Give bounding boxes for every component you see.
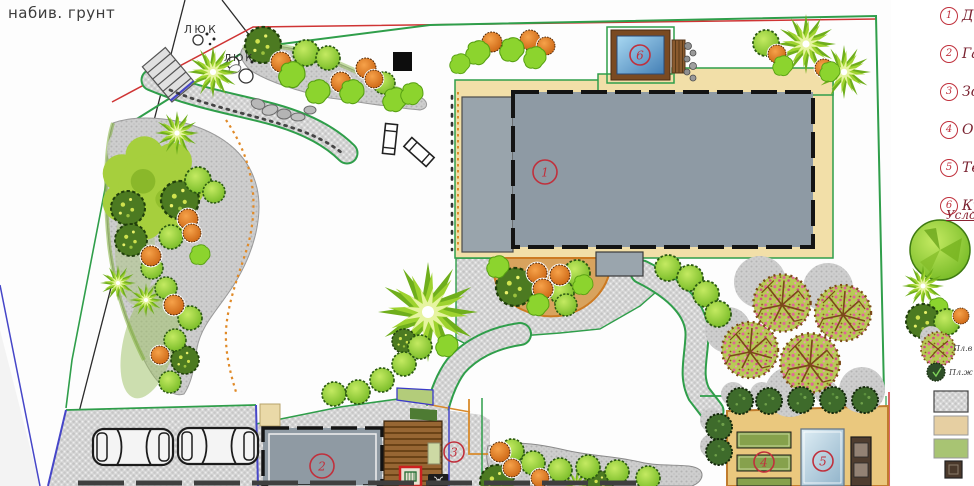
orange-shrub-icon [140,245,163,268]
legend-item-4: 4 Ог [940,121,974,139]
round-shrub-icon [756,388,782,414]
legend-heading: Усло [946,208,974,222]
shrub-icon [705,301,731,327]
legend-fruit-shrub-icon [927,363,945,381]
legend-label-2: Га [962,46,974,62]
legend-paving-swatch [934,391,968,412]
porch [596,252,643,276]
fruit-tree-label: Пл.в [953,344,972,353]
orange-shrub-icon [182,223,203,244]
svg-text:3: 3 [450,446,458,460]
shrub-icon [605,460,629,484]
orange-shrub-icon [150,345,171,366]
legend-lawn-swatch [934,439,968,458]
legend-item-5: 5 Те [940,159,974,177]
fruit-tree-icon [753,274,810,331]
car-icon [178,428,258,464]
landscape-plan: ЛЮК ЛЮК 1 2 3 4 5 6 [0,0,974,486]
legend-sand-swatch [934,416,968,435]
round-shrub-icon [788,387,814,413]
legend-label-4: Ог [962,122,974,138]
main-house [513,92,813,247]
manhole-label: ЛЮК [224,53,254,64]
legend-number-4: 4 [940,121,958,139]
car-icon [93,429,173,465]
legend-label-1: До [962,8,974,24]
ground-note: набив. грунт [8,4,115,22]
legend-number-1: 1 [940,7,958,25]
round-shrub-icon [852,387,878,413]
shrub-icon [370,368,394,392]
legend-number-3: 3 [940,83,958,101]
lounger-icon [404,138,434,167]
house-annex [462,97,513,252]
shrub-icon [203,181,225,203]
svg-text:5: 5 [819,455,827,469]
legend-tree-icon [910,220,970,280]
corner-shading [0,330,40,486]
legend-number-5: 5 [940,159,958,177]
fruit-tree-icon [780,333,839,392]
svg-text:6: 6 [636,49,644,63]
manhole-label: ЛЮК [184,24,218,36]
svg-text:2: 2 [317,460,326,474]
orange-shrub-icon [364,69,385,90]
shrub-icon [346,380,370,404]
shrub-icon [111,191,145,225]
shrub-icon [322,382,346,406]
svg-text:1: 1 [541,166,549,180]
orange-shrub-icon [502,458,523,479]
shrub-icon [555,294,577,316]
round-shrub-icon [820,387,846,413]
round-shrub-icon [706,414,732,440]
shrub-icon [316,46,340,70]
storage-shed [851,437,871,486]
shrub-icon [408,335,432,359]
gate [260,404,280,426]
legend-item-3: 3 Зо [940,83,974,101]
round-shrub-icon [727,388,753,414]
shrub-icon [450,54,470,74]
shrub-icon [159,371,181,393]
fruit-tree-icon [815,285,871,341]
site-plan-drawing: ЛЮК ЛЮК 1 2 3 4 5 6 [0,0,974,486]
lawn-patch [410,408,437,421]
legend-number-2: 2 [940,45,958,63]
legend-timber-swatch [945,461,962,478]
structure-square [393,52,412,71]
shrub-icon [524,47,546,69]
legend-label-5: Те [962,160,974,176]
legend-item-2: 2 Га [940,45,974,63]
shrub-icon [500,38,524,62]
round-shrub-icon [706,439,732,465]
svg-text:4: 4 [759,456,768,470]
fruit-tree-icon [722,322,778,378]
shrub-icon [306,80,330,104]
shrub-icon [576,455,600,479]
orange-shrub-icon [163,294,186,317]
legend-item-1: 1 До [940,7,974,25]
shrub-icon [548,458,572,482]
fruit-shrub-label: Пл.ж [949,368,973,377]
shrub-icon [159,225,183,249]
shrub-icon [164,329,186,351]
legend-label-3: Зо [962,84,974,100]
lounger-icon [382,123,397,154]
